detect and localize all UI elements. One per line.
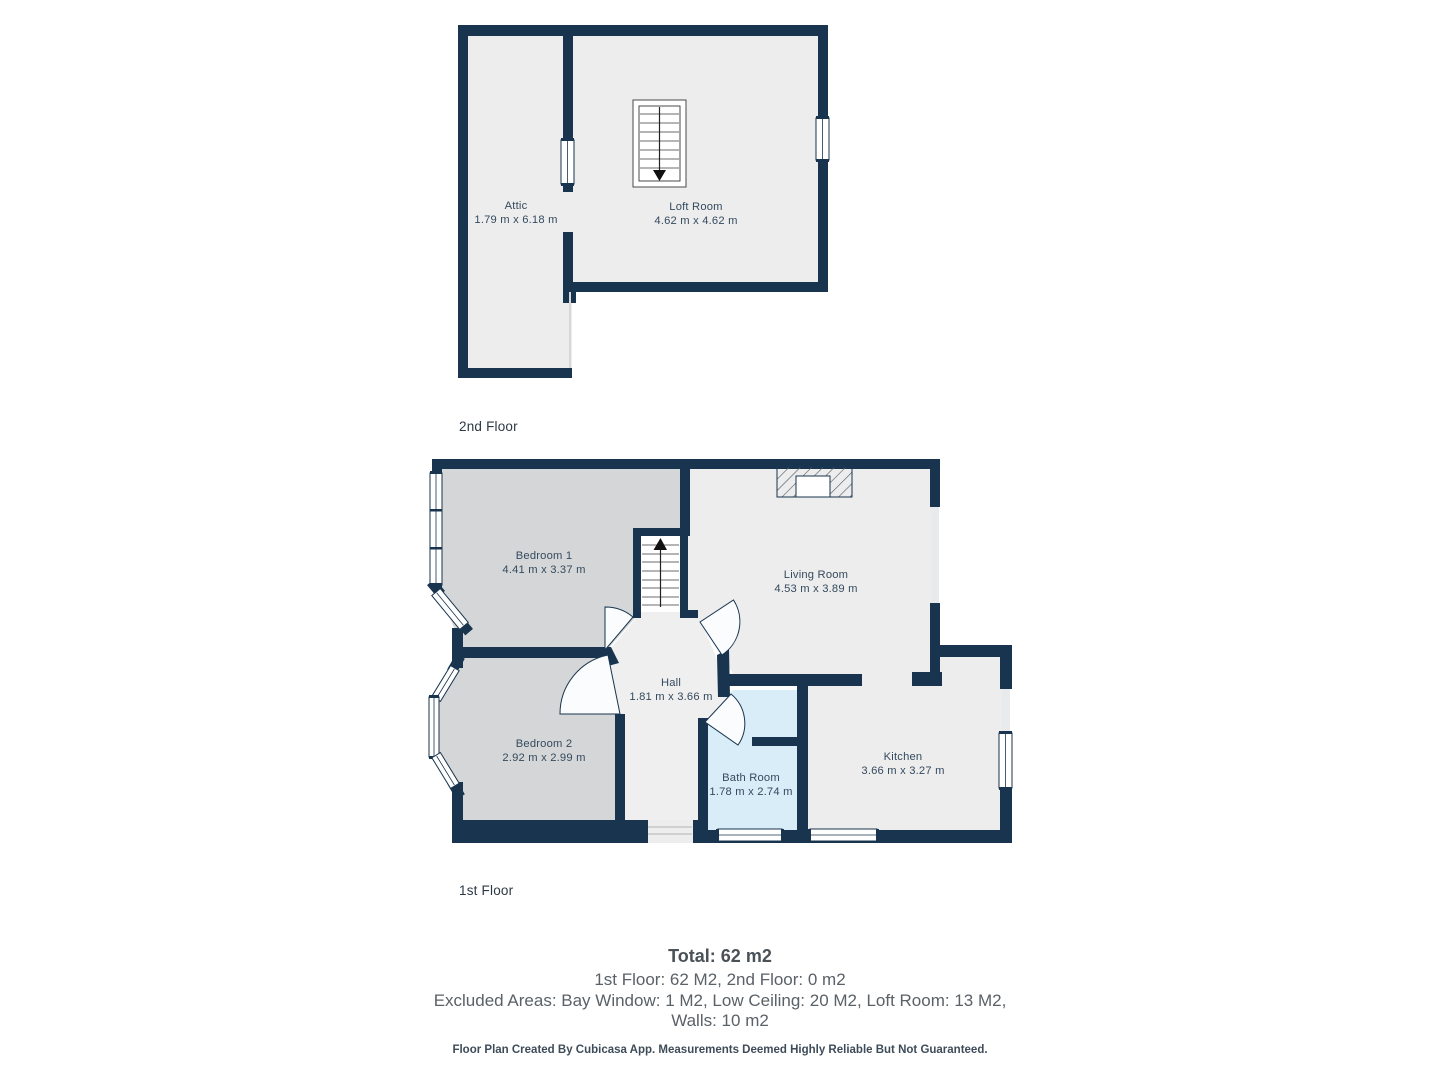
summary-floors: 1st Floor: 62 M2, 2nd Floor: 0 m2 [0, 970, 1440, 991]
floor-plan-drawing: Attic 1.79 m x 6.18 m Loft Room 4.62 m x… [0, 0, 1440, 1080]
room-kitchen-dims: 3.66 m x 3.27 m [861, 765, 944, 777]
room-bedroom2-label: Bedroom 2 [516, 738, 573, 750]
room-loft-dims: 4.62 m x 4.62 m [654, 215, 737, 227]
room-loft-label: Loft Room [669, 201, 722, 213]
disclaimer-note: Floor Plan Created By Cubicasa App. Meas… [0, 1044, 1440, 1056]
first-floor-label: 1st Floor [459, 883, 513, 898]
window-bedroom2-bay-mid [429, 695, 439, 759]
room-bedroom1-label: Bedroom 1 [516, 550, 573, 562]
room-kitchen-label: Kitchen [884, 751, 923, 763]
second-floor-label: 2nd Floor [459, 419, 518, 434]
window-bedroom1-left [430, 471, 442, 586]
room-living-dims: 4.53 m x 3.89 m [774, 583, 857, 595]
floor-plan-first: Bedroom 1 4.41 m x 3.37 m Living Room 4.… [427, 459, 1012, 843]
area-summary: Total: 62 m2 1st Floor: 62 M2, 2nd Floor… [0, 946, 1440, 1032]
window-attic-loft-wall [561, 138, 574, 186]
room-hall-label: Hall [661, 677, 681, 689]
room-attic-label: Attic [505, 200, 528, 212]
room-living-label: Living Room [784, 569, 848, 581]
room-bath-dims: 1.78 m x 2.74 m [709, 786, 792, 798]
window-bath-bottom [716, 829, 784, 841]
floor-plan-page: Attic 1.79 m x 6.18 m Loft Room 4.62 m x… [0, 0, 1440, 1080]
window-loft-right [816, 116, 829, 162]
summary-excluded: Excluded Areas: Bay Window: 1 M2, Low Ce… [0, 991, 1440, 1012]
room-loft-floor [571, 30, 823, 287]
fireplace [777, 467, 852, 497]
room-hall-dims: 1.81 m x 3.66 m [629, 691, 712, 703]
room-bedroom1-dims: 4.41 m x 3.37 m [502, 564, 585, 576]
room-bedroom2-dims: 2.92 m x 2.99 m [502, 752, 585, 764]
window-kitchen-bottom [808, 829, 879, 841]
floor-plan-second: Attic 1.79 m x 6.18 m Loft Room 4.62 m x… [458, 25, 829, 378]
room-bath-label: Bath Room [722, 772, 780, 784]
summary-total: Total: 62 m2 [0, 946, 1440, 967]
staircase-loft [633, 100, 686, 187]
summary-walls: Walls: 10 m2 [0, 1011, 1440, 1032]
room-attic-dims: 1.79 m x 6.18 m [474, 214, 557, 226]
window-kitchen-right [999, 731, 1012, 790]
staircase-first-floor [641, 536, 680, 610]
entrance-steps [645, 820, 693, 843]
